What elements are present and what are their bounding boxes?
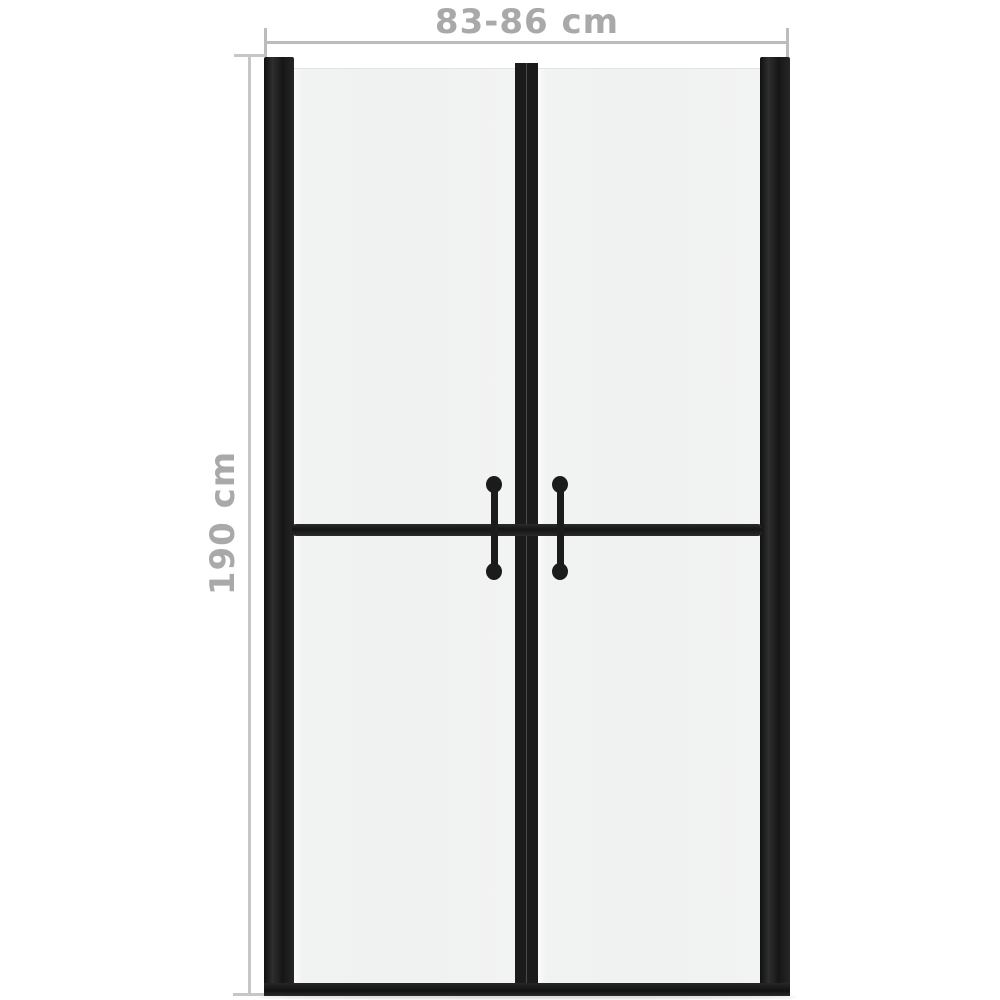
handle-knob (552, 563, 568, 580)
right-frame-post (760, 57, 790, 996)
left-frame-post (264, 57, 294, 996)
height-dimension-line (248, 56, 251, 995)
height-dimension-tick-bottom (233, 993, 264, 996)
product-dimension-diagram: 83-86 cm 190 cm (0, 0, 1000, 1000)
right-door-handle (552, 476, 568, 580)
bottom-rail (264, 983, 790, 996)
width-dimension-line (265, 41, 788, 44)
horizontal-crossbar (292, 524, 762, 536)
width-dimension-label: 83-86 cm (377, 1, 677, 43)
width-dimension-tick-left (264, 28, 267, 57)
height-dimension-tick-top (234, 54, 265, 57)
handle-bar (491, 482, 498, 574)
height-dimension-label: 190 cm (203, 438, 243, 608)
left-door-handle (486, 476, 502, 580)
handle-bar (557, 482, 564, 574)
handle-knob (486, 563, 502, 580)
width-dimension-tick-right (786, 28, 789, 57)
